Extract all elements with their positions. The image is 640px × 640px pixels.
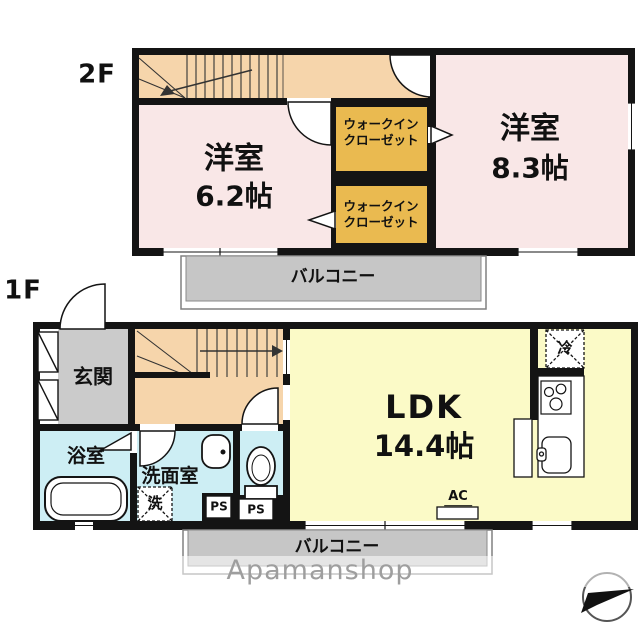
window-1f-balcony: [305, 521, 465, 530]
wic2-line2: クローゼット: [343, 214, 418, 230]
ps2-label: PS: [247, 504, 264, 517]
ldk-area: 14.4帖: [374, 431, 475, 461]
fridge-label: 冷: [557, 341, 572, 357]
ac-box: [437, 507, 478, 519]
room83-name: 洋室: [500, 113, 560, 145]
toilet: [245, 447, 277, 499]
floor2-label: 2F: [78, 61, 116, 88]
bathroom-label: 浴室: [67, 447, 105, 467]
ps1-label: PS: [210, 501, 227, 514]
wic1-label: ウォークイン クローゼット: [343, 116, 418, 147]
wash-basin: [202, 435, 230, 468]
floor1-label: 1F: [4, 277, 42, 304]
window-2f-bottom-left: [163, 248, 278, 256]
window-2f-right: [628, 103, 635, 150]
entrance-label: 玄関: [73, 367, 113, 388]
window-1f-kitchen: [532, 521, 572, 530]
wic1-line2: クローゼット: [343, 132, 418, 148]
wic2-line1: ウォークイン: [343, 198, 418, 214]
vent-bathroom: [75, 521, 93, 530]
door-arc-entrance: [60, 284, 105, 329]
floor1-plan: [33, 284, 638, 574]
room83-area: 8.3帖: [491, 153, 569, 182]
bathtub: [45, 477, 127, 521]
room62-name: 洋室: [204, 143, 264, 175]
wic2-label: ウォークイン クローゼット: [343, 198, 418, 229]
kitchen-peninsula: [514, 419, 532, 477]
wic1-line1: ウォークイン: [343, 116, 418, 132]
washer-label: 洗: [147, 496, 162, 512]
balcony2-label: バルコニー: [291, 269, 376, 287]
ldk-name: LDK: [385, 391, 463, 425]
watermark-text: Apamanshop: [227, 557, 414, 585]
room62-area: 6.2帖: [195, 181, 273, 210]
floorplan-page: 2F 洋室 6.2帖 ウォークイン クローゼット ウォークイン クローゼット 洋…: [0, 0, 640, 640]
washroom-label: 洗面室: [141, 467, 198, 487]
window-2f-bottom-right: [518, 248, 578, 256]
ac-label: AC: [444, 490, 472, 506]
